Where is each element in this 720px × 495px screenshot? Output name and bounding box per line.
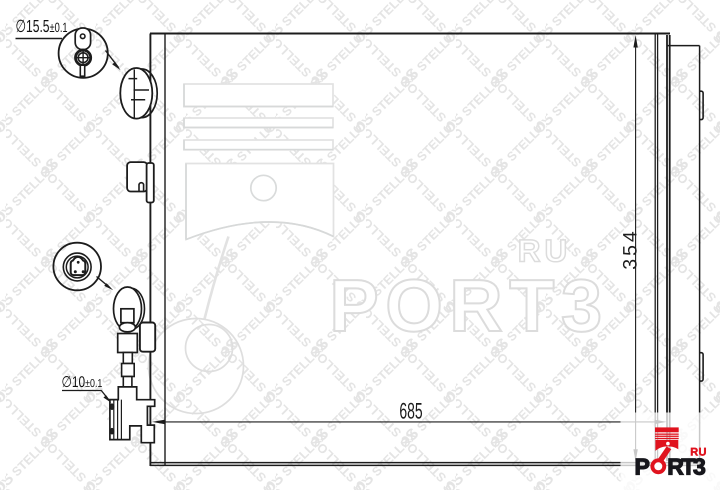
svg-text:P: P: [635, 454, 650, 480]
svg-text:PORT3: PORT3: [329, 264, 608, 347]
svg-text:RU: RU: [690, 447, 707, 459]
svg-text:354: 354: [620, 228, 642, 270]
svg-text:RU: RU: [518, 233, 572, 269]
svg-text:685: 685: [399, 399, 422, 424]
